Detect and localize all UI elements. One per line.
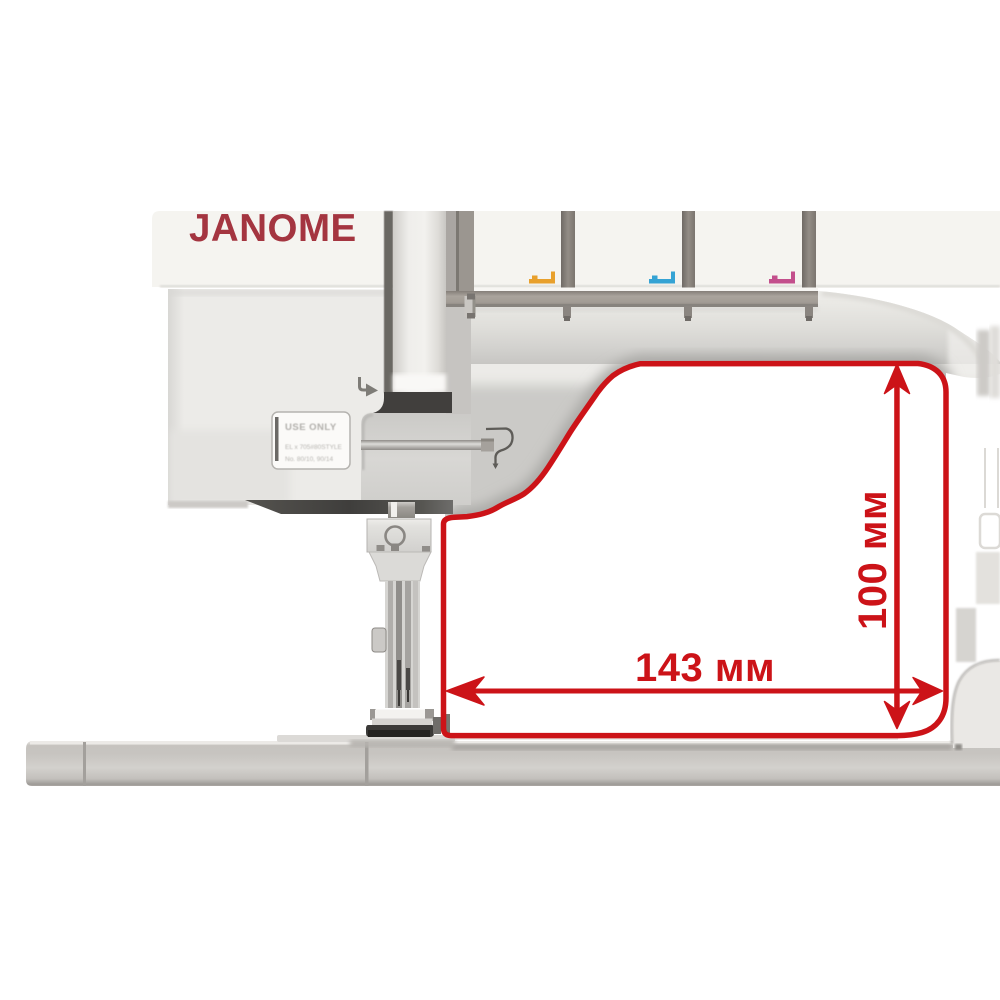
svg-text:USE ONLY: USE ONLY <box>285 422 337 433</box>
svg-text:No. 80/10, 90/14: No. 80/10, 90/14 <box>285 456 333 463</box>
svg-text:100 мм: 100 мм <box>851 490 895 630</box>
svg-text:JANOME: JANOME <box>189 207 357 250</box>
svg-text:143 мм: 143 мм <box>635 646 775 690</box>
svg-text:EL x 705#80STYLE: EL x 705#80STYLE <box>285 444 343 451</box>
